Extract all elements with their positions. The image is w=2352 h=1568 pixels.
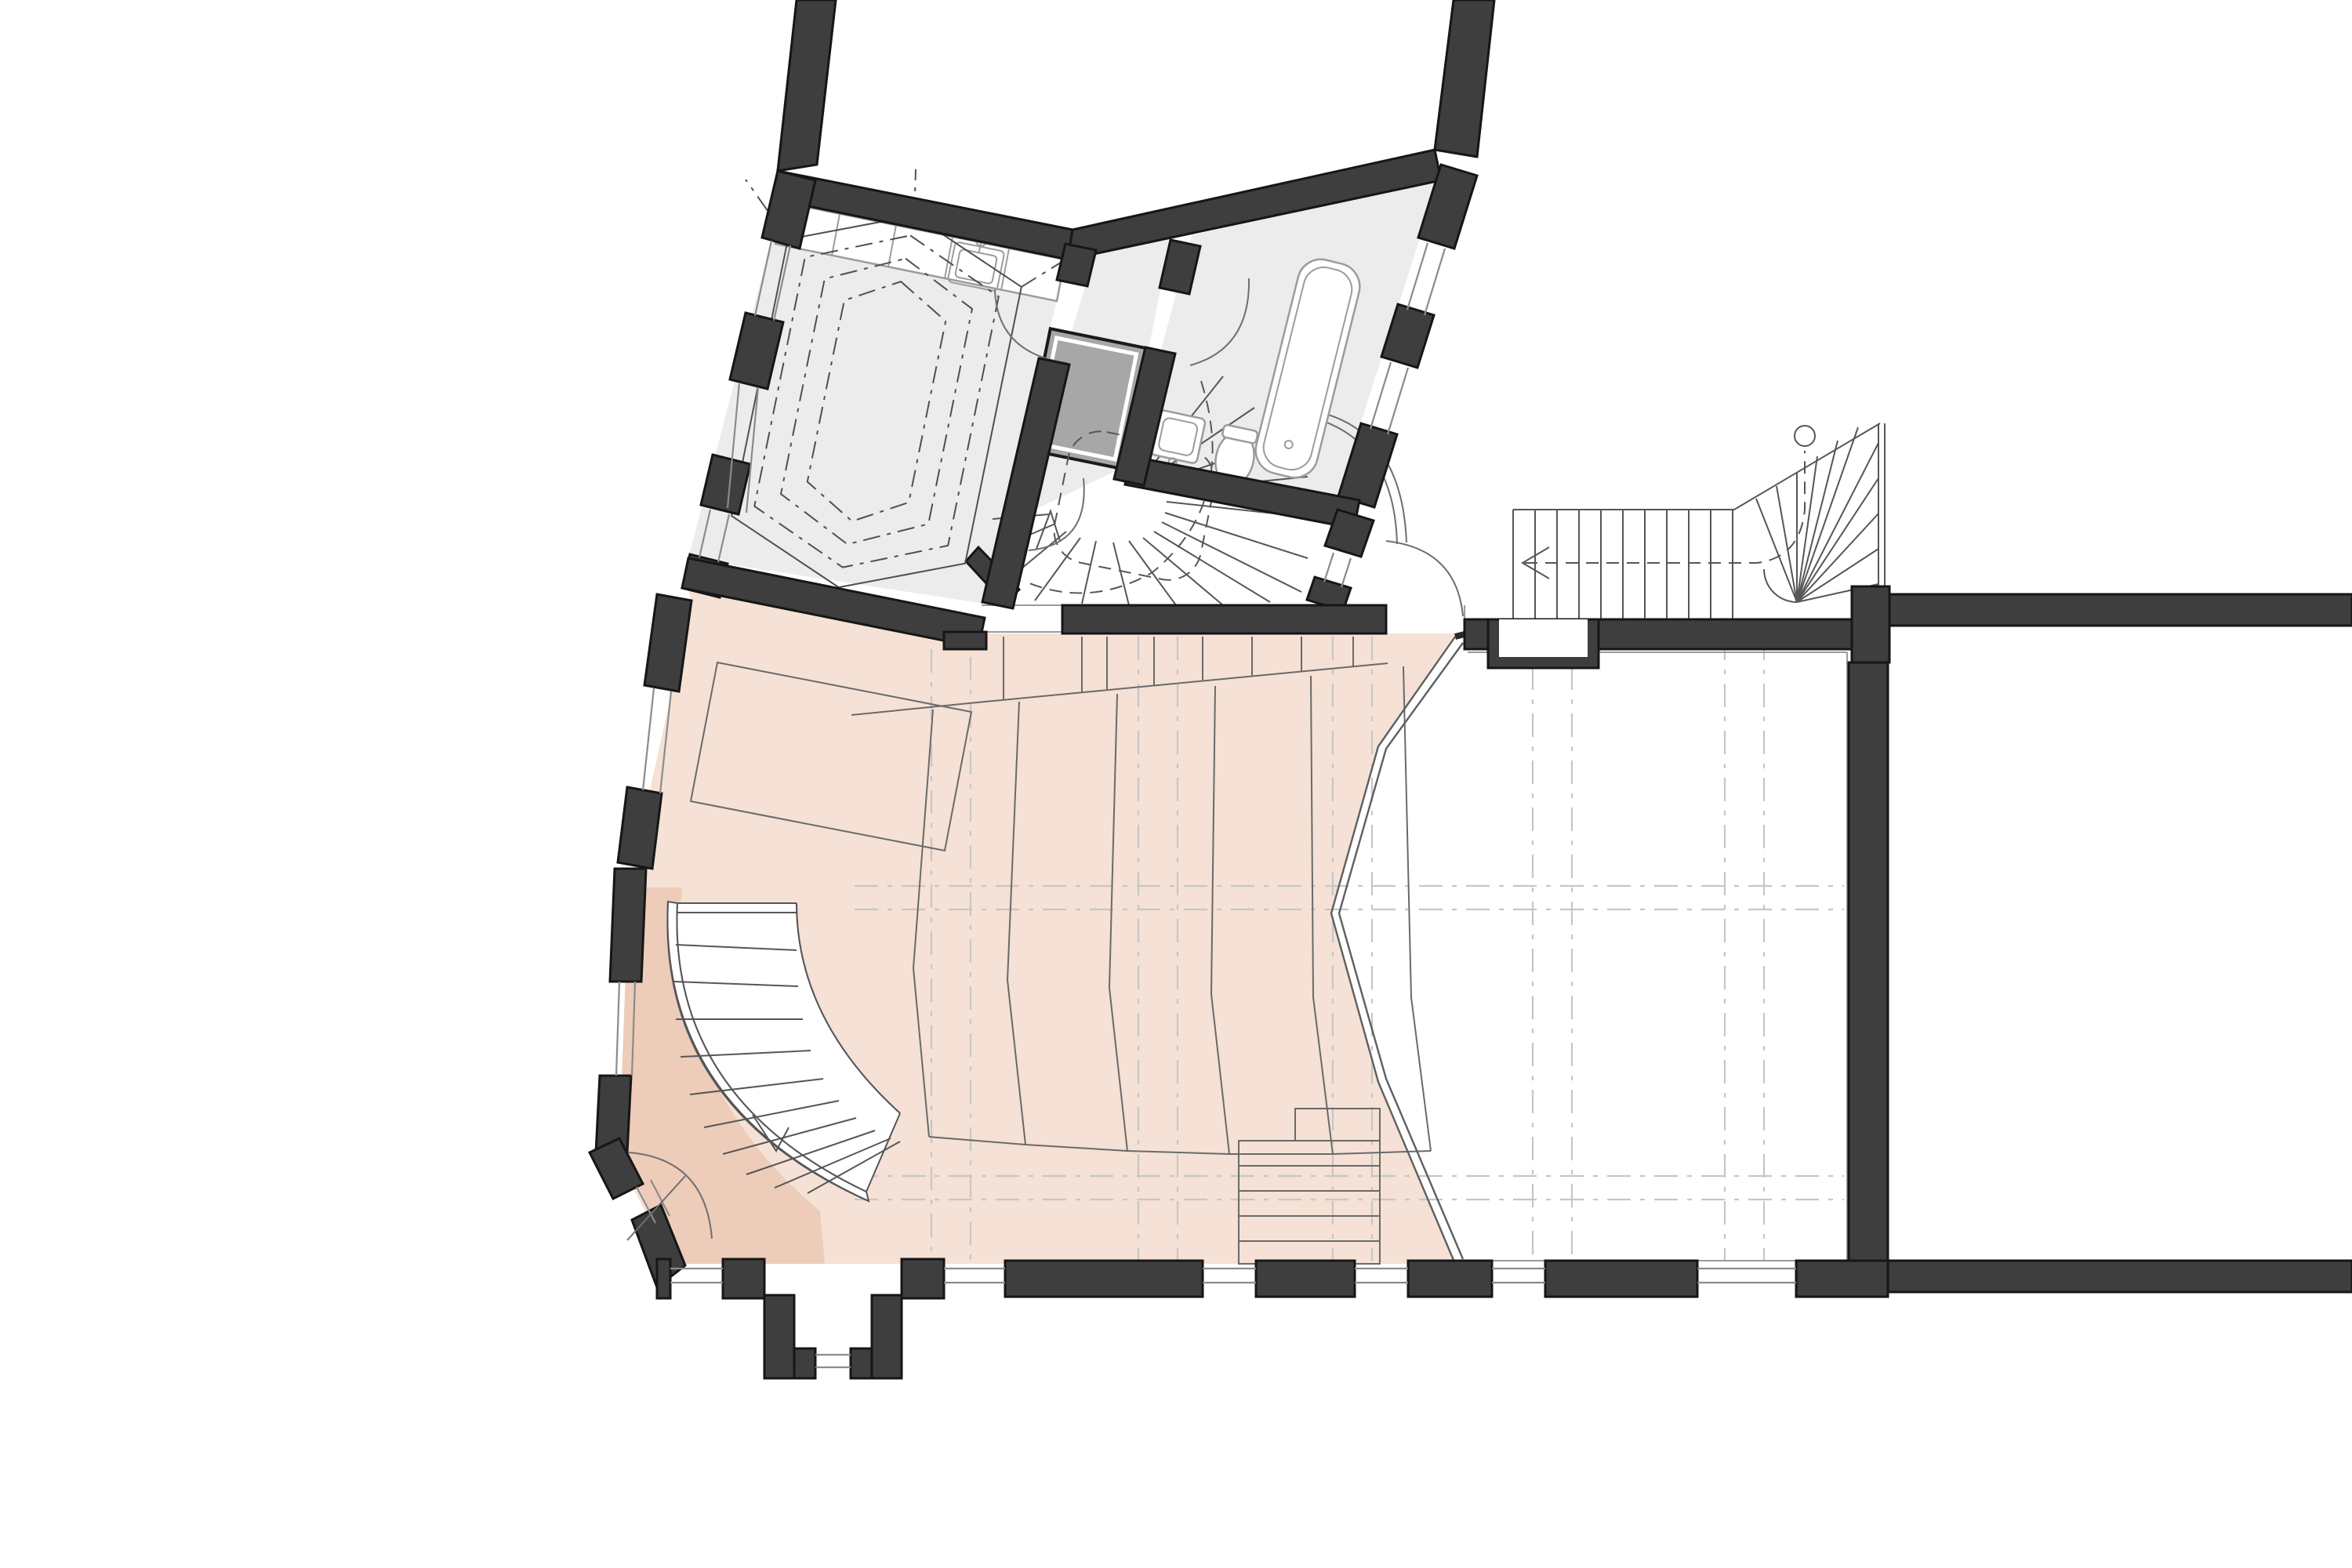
floor-plan-page — [0, 0, 2352, 1568]
floor-plan-canvas — [0, 0, 2352, 1568]
wall-niche — [1488, 619, 1599, 668]
